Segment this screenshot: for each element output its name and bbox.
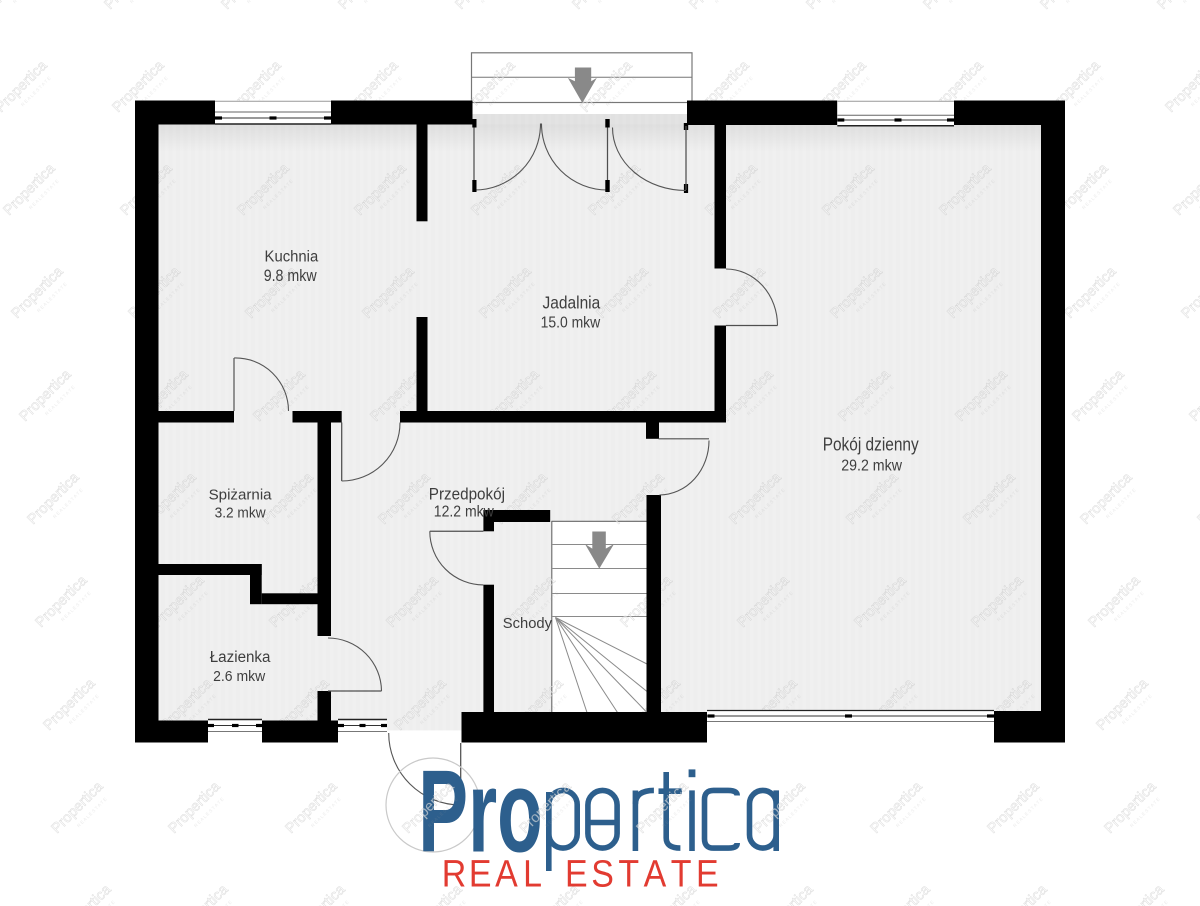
svg-text:Jadalnia: Jadalnia: [543, 292, 601, 312]
svg-text:9.8 mkw: 9.8 mkw: [264, 267, 317, 285]
svg-text:T: T: [618, 853, 639, 895]
svg-text:Spiżarnia: Spiżarnia: [209, 488, 272, 504]
svg-text:A: A: [644, 853, 667, 895]
svg-text:A: A: [495, 853, 518, 895]
svg-text:E: E: [469, 853, 492, 895]
svg-text:Kuchnia: Kuchnia: [265, 248, 319, 265]
svg-text:Schody: Schody: [503, 616, 553, 632]
svg-text:2.6 mkw: 2.6 mkw: [213, 669, 266, 685]
svg-text:S: S: [591, 853, 614, 895]
svg-text:L: L: [523, 853, 542, 895]
svg-text:3.2 mkw: 3.2 mkw: [215, 506, 267, 522]
svg-text:12.2 mkw: 12.2 mkw: [434, 504, 494, 521]
svg-text:Łazienka: Łazienka: [210, 649, 271, 666]
svg-text:E: E: [696, 853, 719, 895]
svg-text:Pokój dzienny: Pokój dzienny: [823, 433, 920, 454]
svg-text:Przedpokój: Przedpokój: [429, 485, 505, 504]
svg-text:15.0 mkw: 15.0 mkw: [541, 314, 601, 331]
svg-text:29.2 mkw: 29.2 mkw: [841, 457, 902, 474]
